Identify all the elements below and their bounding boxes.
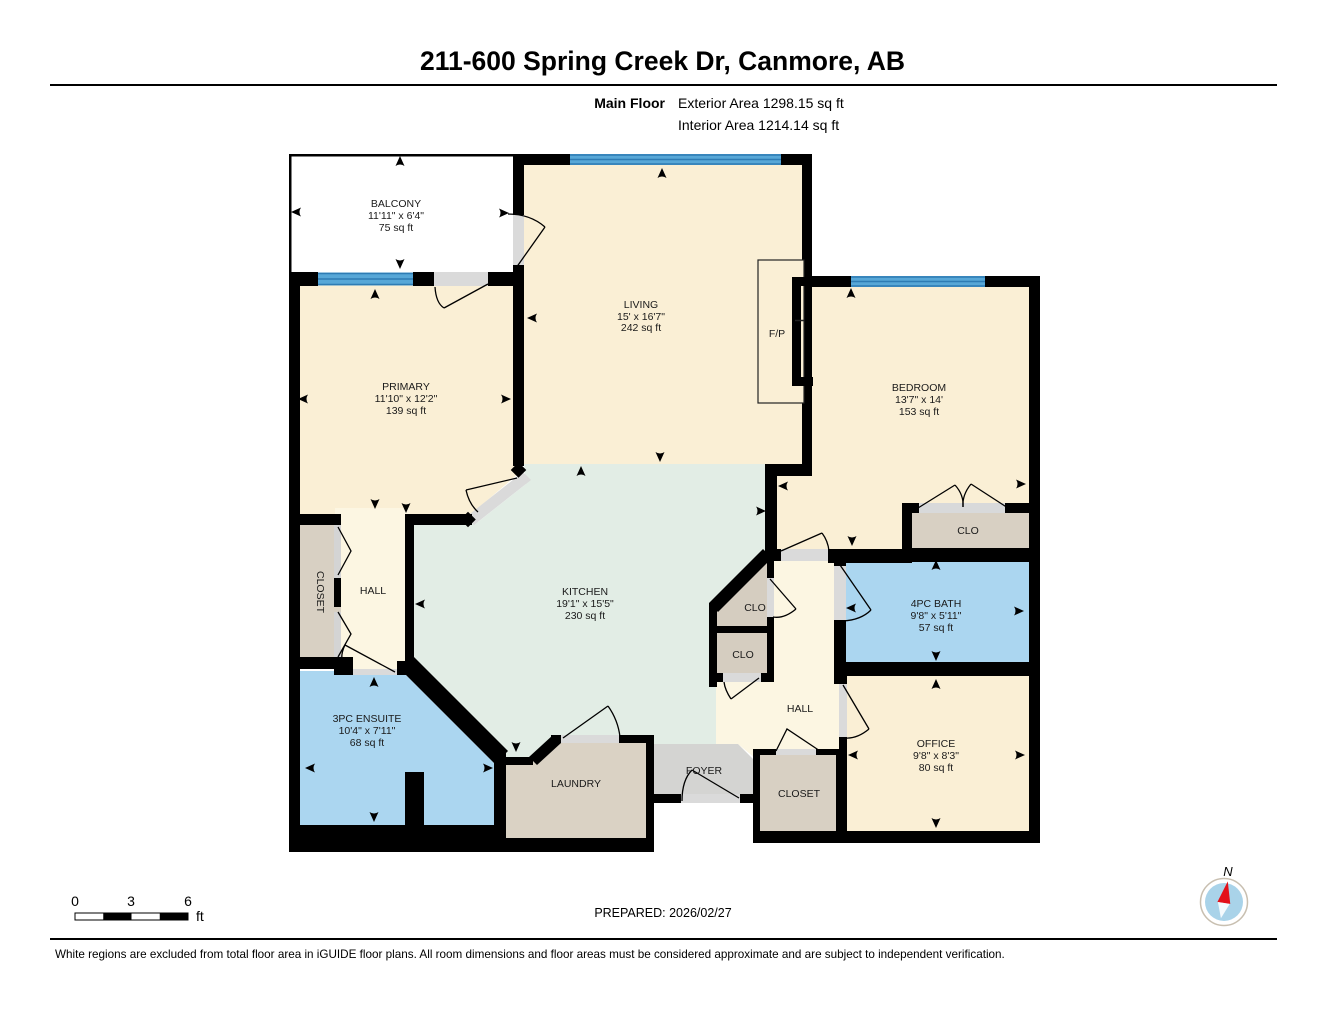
- svg-text:13'7" x 14': 13'7" x 14': [895, 394, 943, 406]
- svg-text:LIVING: LIVING: [624, 299, 658, 311]
- svg-text:N: N: [1223, 864, 1233, 879]
- svg-text:3: 3: [127, 893, 135, 909]
- svg-text:230 sq ft: 230 sq ft: [565, 610, 605, 622]
- svg-text:57 sq ft: 57 sq ft: [919, 622, 954, 634]
- svg-text:68 sq ft: 68 sq ft: [350, 737, 385, 749]
- svg-text:CLO: CLO: [957, 525, 979, 537]
- svg-text:6: 6: [184, 893, 192, 909]
- svg-text:139 sq ft: 139 sq ft: [386, 405, 426, 417]
- svg-text:80 sq ft: 80 sq ft: [919, 762, 954, 774]
- svg-text:FOYER: FOYER: [686, 765, 723, 777]
- svg-text:KITCHEN: KITCHEN: [562, 586, 608, 598]
- svg-text:PRIMARY: PRIMARY: [382, 381, 430, 393]
- svg-text:F/P: F/P: [769, 328, 785, 340]
- svg-text:CLOSET: CLOSET: [314, 571, 326, 614]
- svg-text:LAUNDRY: LAUNDRY: [551, 778, 601, 790]
- svg-text:75 sq ft: 75 sq ft: [379, 222, 414, 234]
- svg-text:3PC ENSUITE: 3PC ENSUITE: [333, 713, 402, 725]
- svg-text:HALL: HALL: [787, 703, 813, 715]
- svg-text:9'8" x 5'11": 9'8" x 5'11": [911, 610, 962, 622]
- svg-text:CLO: CLO: [744, 602, 766, 614]
- svg-text:9'8" x 8'3": 9'8" x 8'3": [913, 750, 959, 762]
- svg-text:19'1" x 15'5": 19'1" x 15'5": [556, 598, 614, 610]
- svg-text:4PC BATH: 4PC BATH: [911, 598, 962, 610]
- svg-text:ft: ft: [196, 908, 204, 924]
- svg-text:PREPARED: 2026/02/27: PREPARED: 2026/02/27: [594, 906, 731, 920]
- svg-text:11'10" x 12'2": 11'10" x 12'2": [375, 393, 438, 405]
- svg-text:10'4" x 7'11": 10'4" x 7'11": [339, 725, 396, 737]
- svg-text:BALCONY: BALCONY: [371, 198, 421, 210]
- svg-text:242 sq ft: 242 sq ft: [621, 322, 661, 334]
- svg-text:153 sq ft: 153 sq ft: [899, 406, 939, 418]
- svg-text:BEDROOM: BEDROOM: [892, 382, 946, 394]
- svg-text:OFFICE: OFFICE: [917, 738, 956, 750]
- svg-text:0: 0: [71, 893, 79, 909]
- svg-text:CLO: CLO: [732, 649, 754, 661]
- svg-text:HALL: HALL: [360, 585, 386, 597]
- svg-text:CLOSET: CLOSET: [778, 788, 821, 800]
- svg-text:11'11" x 6'4": 11'11" x 6'4": [368, 210, 424, 222]
